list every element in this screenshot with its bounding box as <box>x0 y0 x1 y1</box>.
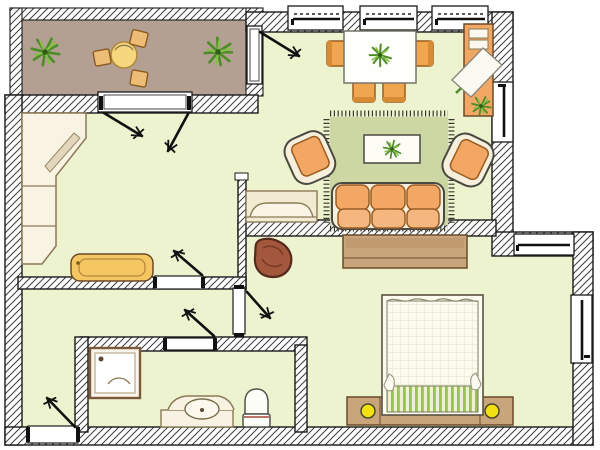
kitchen-bench <box>71 254 153 281</box>
sofa <box>332 183 444 229</box>
left-wall <box>5 95 22 445</box>
sideboard-item <box>469 29 488 38</box>
hall-bedroom-wall <box>238 179 246 290</box>
bedside-lamp <box>361 404 375 418</box>
balcony-top-wall <box>10 8 258 20</box>
balcony-stool <box>129 29 148 47</box>
bed-throw <box>387 386 478 412</box>
balcony-stool <box>93 49 111 67</box>
top-window-2 <box>360 6 417 30</box>
floor-plan-canvas <box>0 0 600 450</box>
sideboard-item <box>469 40 488 49</box>
double-bed <box>382 295 483 415</box>
toilet <box>243 389 270 427</box>
dining-chair-back <box>327 41 332 66</box>
bedroom-right-window <box>571 295 592 363</box>
floor-plan-stage <box>0 0 600 450</box>
top-window-1 <box>288 6 343 30</box>
hall-bedroom-door <box>233 285 245 337</box>
shower <box>90 348 140 398</box>
hall-bathroom-door <box>163 338 217 350</box>
wardrobe <box>343 235 467 268</box>
bathroom-right-wall <box>295 345 307 432</box>
hall-kitchen-door <box>153 276 205 289</box>
dining-chair-back <box>383 97 405 102</box>
balcony-left-wall <box>10 8 22 96</box>
bathroom-left-wall <box>75 337 88 432</box>
kitchen-balcony-door <box>98 92 192 112</box>
bench-seat <box>246 191 317 222</box>
bedroom-top-window <box>514 234 574 255</box>
wall-end-cap <box>235 173 248 180</box>
entrance-door <box>26 426 80 443</box>
bedside-lamp <box>485 404 499 418</box>
balcony-stool <box>130 70 148 88</box>
dining-chair-back <box>428 41 433 66</box>
right-upper-window <box>492 82 513 142</box>
dining-chair-back <box>353 97 375 102</box>
balcony-partition-window <box>247 26 262 84</box>
